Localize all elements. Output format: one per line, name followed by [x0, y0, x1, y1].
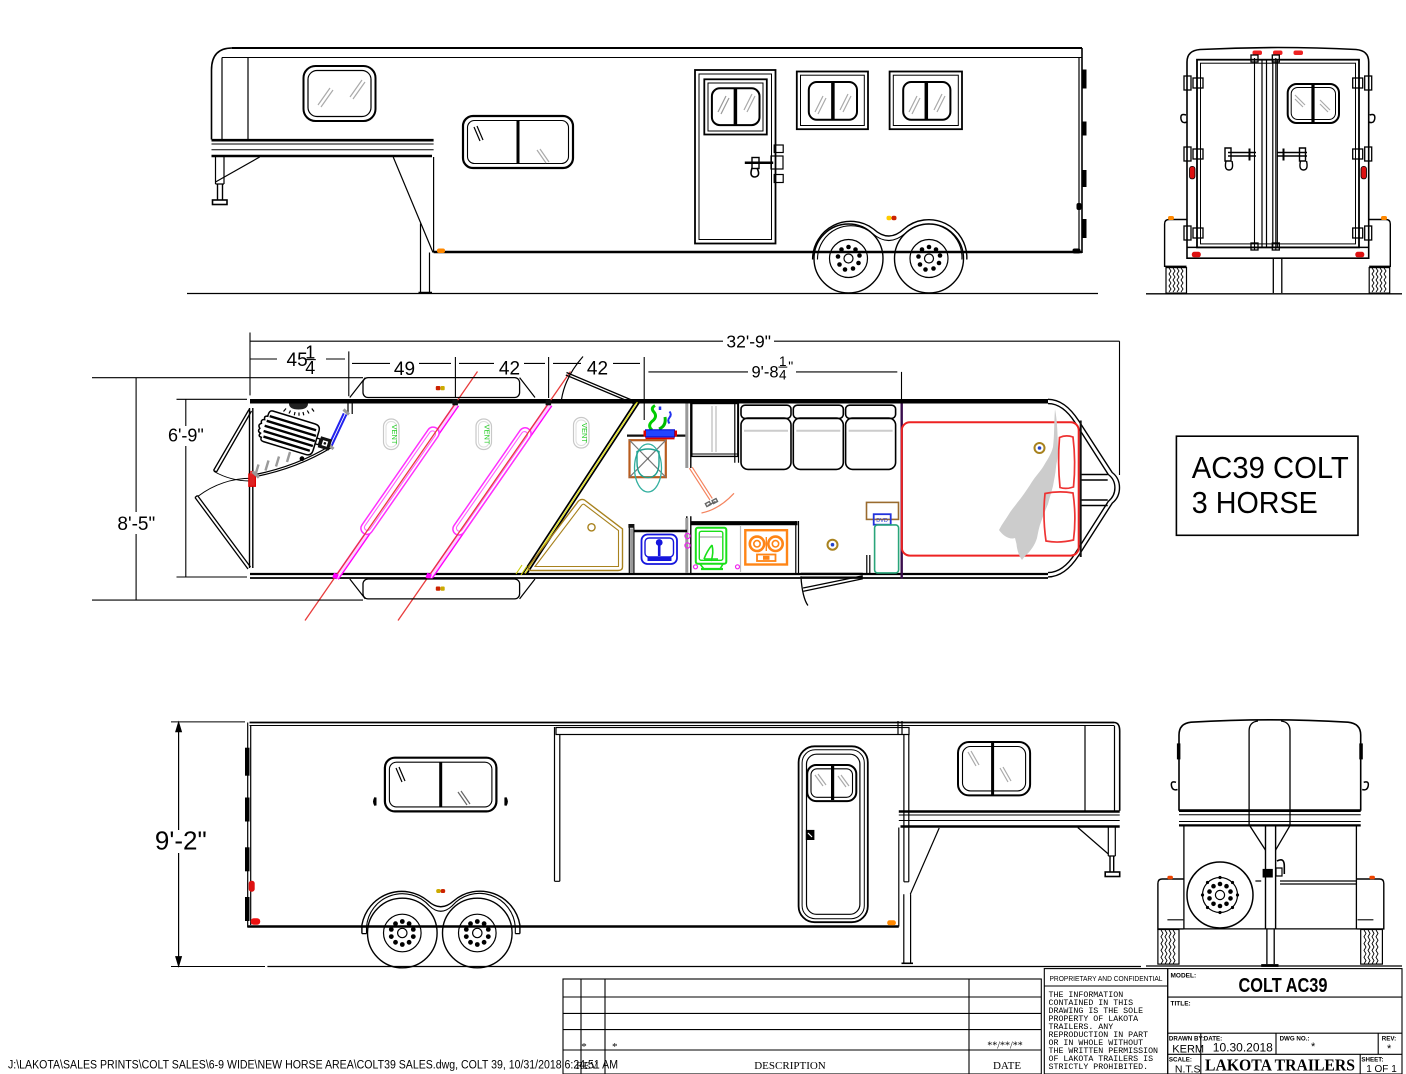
svg-text:DRAWN BY:: DRAWN BY:	[1169, 1036, 1204, 1043]
svg-text:SHEET:: SHEET:	[1361, 1057, 1383, 1064]
svg-text:DWG NO.:: DWG NO.:	[1280, 1036, 1310, 1043]
svg-text:32'-9": 32'-9"	[726, 332, 771, 352]
svg-text:STRICTLY PROHIBITED.: STRICTLY PROHIBITED.	[1049, 1063, 1149, 1072]
svg-text:N.T.S: N.T.S	[1175, 1064, 1201, 1074]
svg-text:1 OF 1: 1 OF 1	[1366, 1064, 1397, 1074]
svg-text:4: 4	[305, 358, 315, 378]
svg-text:**/**/**: **/**/**	[987, 1041, 1023, 1052]
svg-text:COLT AC39: COLT AC39	[1239, 975, 1328, 997]
svg-text:VENT: VENT	[482, 424, 491, 444]
svg-text:*: *	[612, 1041, 618, 1053]
svg-text:*: *	[581, 1041, 587, 1053]
svg-text:6'-9": 6'-9"	[168, 425, 204, 445]
svg-text:9'-8: 9'-8	[752, 364, 779, 382]
svg-text:DATE: DATE	[993, 1060, 1021, 1072]
svg-text:LAKOTA TRAILERS: LAKOTA TRAILERS	[1205, 1056, 1355, 1074]
svg-text:PROPRIETARY AND CONFIDENTIAL: PROPRIETARY AND CONFIDENTIAL	[1050, 974, 1163, 983]
svg-text:*: *	[1387, 1043, 1392, 1055]
svg-text:9'-2": 9'-2"	[155, 826, 207, 856]
svg-text:J:\LAKOTA\SALES PRINTS\COLT SA: J:\LAKOTA\SALES PRINTS\COLT SALES\6-9 WI…	[8, 1060, 618, 1072]
svg-text:*: *	[1311, 1041, 1316, 1053]
svg-text:KERM: KERM	[1172, 1044, 1204, 1056]
svg-text:": "	[788, 358, 793, 374]
svg-text:42: 42	[587, 359, 608, 380]
svg-text:VENT: VENT	[390, 424, 399, 444]
svg-text:10.30.2018: 10.30.2018	[1213, 1041, 1273, 1055]
svg-text:AC39 COLT: AC39 COLT	[1192, 450, 1349, 485]
svg-text:MODEL:: MODEL:	[1171, 973, 1197, 980]
svg-text:REV:: REV:	[1382, 1036, 1396, 1043]
svg-text:49: 49	[394, 359, 415, 380]
svg-text:SCALE:: SCALE:	[1169, 1057, 1192, 1064]
svg-text:3 HORSE: 3 HORSE	[1192, 485, 1318, 520]
svg-text:42: 42	[499, 359, 520, 380]
svg-text:VENT: VENT	[580, 423, 589, 443]
svg-text:TITLE:: TITLE:	[1171, 1001, 1191, 1008]
svg-text:DVD: DVD	[876, 518, 888, 524]
svg-text:8'-5": 8'-5"	[117, 514, 155, 535]
svg-text:4: 4	[779, 368, 787, 383]
svg-text:DESCRIPTION: DESCRIPTION	[754, 1060, 826, 1072]
